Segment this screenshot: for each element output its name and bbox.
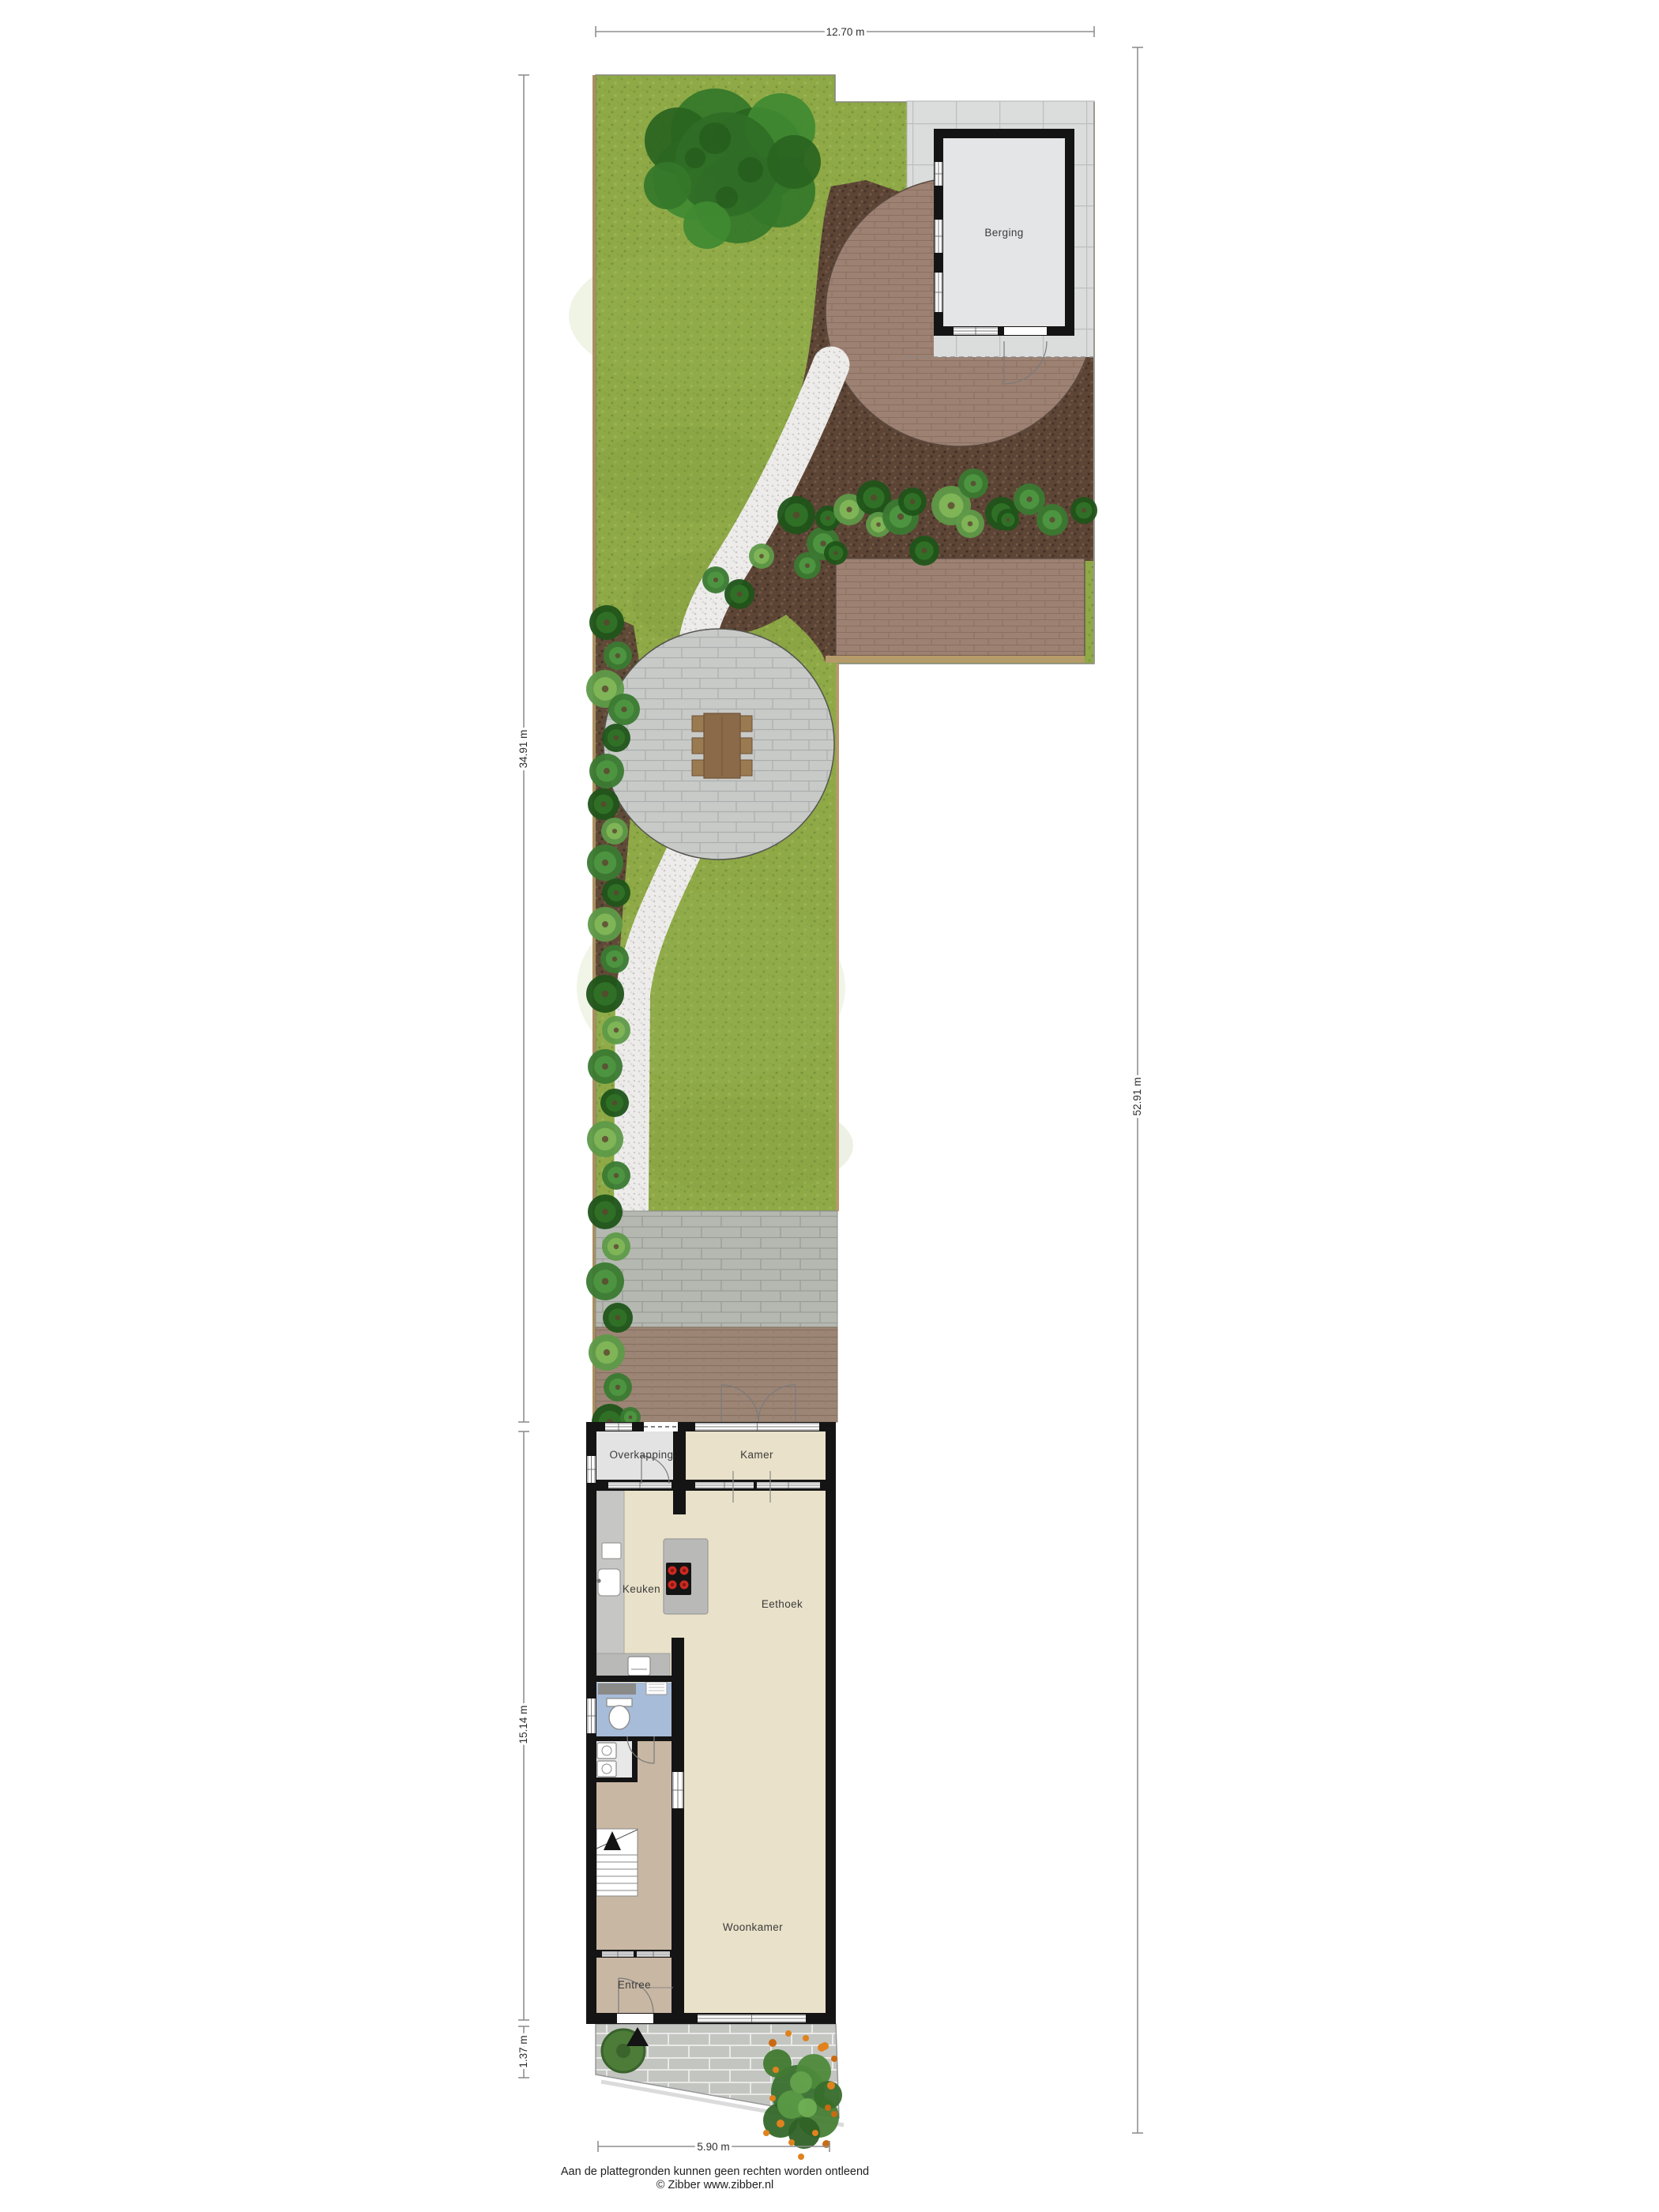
oven-icon [628,1657,650,1676]
toilet-bowl-icon [609,1706,630,1729]
shrub [588,1194,623,1229]
shed-tile-bottom-band [934,334,1094,357]
shrub [589,605,624,640]
shrub [601,818,628,845]
room-label-woonkamer: Woonkamer [723,1921,783,1933]
dim-right-total: 52.91 m [1131,1078,1143,1116]
shrub [777,496,815,534]
room-label-overkapping: Overkapping [610,1449,674,1461]
site-plan-page: Berging [0,0,1659,2212]
shrub [604,641,632,670]
shrub [909,536,939,566]
staircase [596,1829,638,1896]
shrub [956,510,984,538]
garden-edge-strip [826,656,1085,663]
block-paving-terrace [596,1211,837,1327]
shrub [588,1049,623,1084]
shrub [589,754,624,788]
shrub [587,1121,623,1157]
shrub [898,487,927,516]
footer: Aan de plattegronden kunnen geen rechten… [561,2165,869,2191]
footer-disclaimer: Aan de plattegronden kunnen geen rechten… [561,2165,869,2178]
dim-left-house: 15.14 m [517,1706,529,1744]
washer-icon [597,1743,616,1759]
dryer-icon [597,1761,616,1777]
dim-top: 12.70 m [826,26,865,38]
shrub [600,1089,629,1117]
shrub [794,552,821,579]
brick-path [836,559,1085,656]
site-plan-canvas: Berging [0,0,1659,2212]
shrub [958,468,988,498]
shrub [608,694,640,725]
shrub [600,945,629,973]
shrub [1070,497,1097,524]
faucet-icon [596,1578,600,1582]
shrub [588,788,619,820]
room-label-entree: Entree [618,1979,651,1991]
shrub [824,541,848,565]
shrub [602,1232,630,1261]
shrub [702,566,729,593]
room-label-eethoek: Eethoek [762,1598,803,1610]
shrub [604,1373,632,1401]
shrub [587,845,623,881]
shrub [602,1016,630,1044]
toilet-counter [598,1683,636,1695]
shrub [589,1334,625,1371]
dim-left-front: 1.37 m [517,2035,529,2067]
room-label-berging: Berging [984,227,1023,239]
dim-left-garden: 34.91 m [517,730,529,769]
dishwasher-icon [602,1543,621,1559]
shrub [603,1303,633,1333]
shrub [586,975,624,1013]
shrub [602,878,630,907]
shrub [724,579,754,609]
shrub [588,907,623,942]
shrub [997,509,1019,531]
shrub [602,724,630,752]
room-label-kamer: Kamer [740,1449,773,1461]
shed-tile-right-band [1073,129,1094,357]
shrub [602,1161,630,1190]
footer-credit: © Zibber www.zibber.nl [656,2179,774,2191]
dim-bottom: 5.90 m [697,2141,729,2153]
shrub [749,544,774,569]
sink-icon [598,1569,620,1596]
cooktop-icon [666,1563,691,1595]
room-label-keuken: Keuken [623,1583,660,1595]
vent-grate-icon [646,1682,667,1695]
shrub [586,1262,624,1300]
shrub [1036,504,1068,536]
garden-dining-table [692,713,752,778]
